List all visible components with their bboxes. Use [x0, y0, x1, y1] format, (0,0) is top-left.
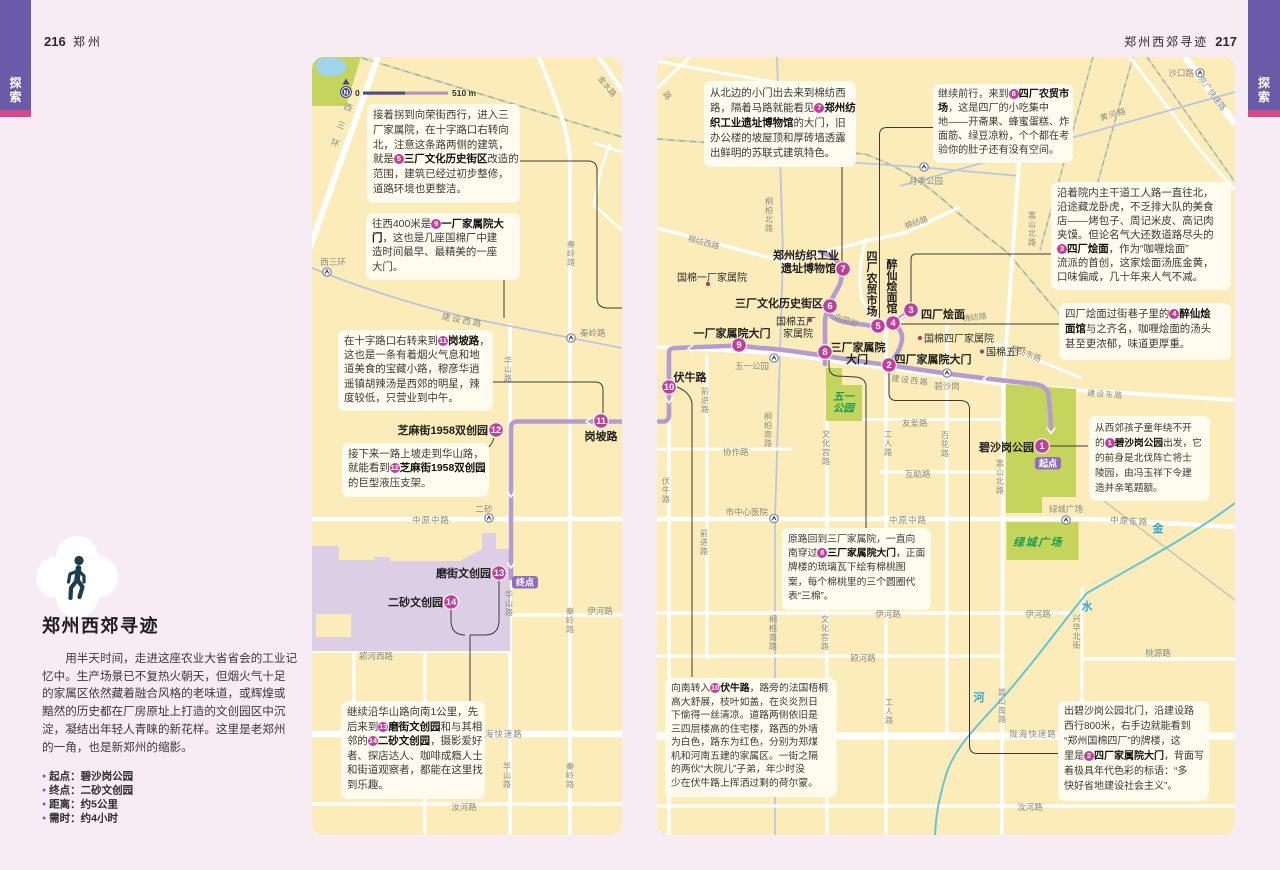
- svg-text:0: 0: [355, 88, 360, 98]
- svg-text:三厂文化历史街区: 三厂文化历史街区: [735, 296, 823, 310]
- svg-text:起点: 起点: [1038, 458, 1057, 469]
- svg-text:一厂家属院大门: 一厂家属院大门: [694, 326, 771, 340]
- svg-text:沙口路: 沙口路: [1168, 68, 1194, 78]
- svg-text:5: 5: [875, 321, 881, 332]
- svg-text:1: 1: [1039, 441, 1045, 452]
- svg-text:中原东路: 中原东路: [1110, 515, 1148, 527]
- svg-text:14: 14: [446, 597, 457, 608]
- svg-text:伊河路: 伊河路: [875, 609, 901, 619]
- svg-text:桐柏南路: 桐柏南路: [764, 411, 772, 448]
- svg-text:三厂家属院: 三厂家属院: [831, 340, 886, 354]
- svg-text:芝麻街1958双创园: 芝麻街1958双创园: [398, 423, 488, 437]
- svg-text:9: 9: [736, 340, 741, 351]
- svg-text:3: 3: [908, 305, 913, 316]
- svg-text:岗坡路: 岗坡路: [585, 429, 619, 443]
- svg-text:中原中路: 中原中路: [889, 515, 927, 525]
- svg-text:秦岭路: 秦岭路: [566, 606, 574, 634]
- svg-text:四厂烩面: 四厂烩面: [921, 307, 965, 321]
- svg-text:前进路: 前进路: [701, 386, 709, 414]
- svg-text:市中心医院: 市中心医院: [725, 507, 768, 517]
- svg-text:月季公园: 月季公园: [909, 176, 943, 186]
- svg-text:互助路: 互助路: [905, 469, 931, 479]
- svg-text:汝河路: 汝河路: [451, 802, 477, 812]
- svg-text:兴华北街: 兴华北街: [1073, 614, 1081, 650]
- svg-text:嵩山北路: 嵩山北路: [1028, 211, 1036, 247]
- svg-text:百花路: 百花路: [941, 431, 949, 458]
- svg-text:国棉四厂家属院: 国棉四厂家属院: [924, 332, 994, 345]
- svg-text:西三环: 西三环: [320, 257, 346, 267]
- svg-text:五一公园: 五一公园: [833, 391, 856, 415]
- svg-text:12: 12: [491, 425, 502, 436]
- svg-text:桃源路: 桃源路: [1145, 648, 1171, 658]
- svg-text:河: 河: [974, 690, 985, 704]
- svg-text:陇海快速路: 陇海快速路: [1009, 729, 1057, 739]
- svg-text:家属院: 家属院: [783, 327, 813, 340]
- svg-text:水: 水: [1082, 599, 1094, 613]
- svg-text:碧沙岗公园: 碧沙岗公园: [978, 440, 1034, 454]
- svg-text:国棉五厂: 国棉五厂: [776, 315, 816, 328]
- svg-text:8: 8: [822, 347, 827, 358]
- svg-text:工人路: 工人路: [885, 698, 893, 725]
- svg-text:前进路: 前进路: [700, 528, 708, 556]
- svg-text:颍河路: 颍河路: [850, 653, 876, 663]
- svg-text:醉仙烩面馆: 醉仙烩面馆: [887, 257, 898, 315]
- svg-text:13: 13: [494, 568, 505, 579]
- svg-text:秦岭路: 秦岭路: [567, 239, 575, 267]
- svg-text:遗址博物馆: 遗址博物馆: [780, 261, 836, 275]
- svg-text:秦岭路: 秦岭路: [580, 328, 606, 338]
- svg-text:二砂: 二砂: [475, 504, 493, 514]
- svg-text:文化宫路: 文化宫路: [822, 429, 830, 466]
- svg-text:绿城广场: 绿城广场: [1013, 536, 1063, 549]
- svg-text:终点: 终点: [515, 577, 534, 588]
- svg-text:N: N: [344, 90, 349, 97]
- svg-text:秦岭路: 秦岭路: [566, 761, 574, 789]
- svg-text:桐柏南路: 桐柏南路: [769, 614, 777, 651]
- svg-text:协作路: 协作路: [723, 447, 749, 457]
- svg-text:国棉五厂: 国棉五厂: [986, 346, 1026, 359]
- svg-text:工人路: 工人路: [884, 430, 892, 457]
- svg-text:伏牛路: 伏牛路: [674, 370, 708, 384]
- svg-text:华山路: 华山路: [503, 761, 511, 789]
- svg-text:华山路: 华山路: [505, 589, 513, 617]
- svg-text:4: 4: [890, 318, 896, 329]
- svg-text:文化宫路: 文化宫路: [821, 614, 829, 651]
- svg-text:郑州纺织工业: 郑州纺织工业: [773, 248, 839, 262]
- svg-text:桐柏北路: 桐柏北路: [765, 196, 773, 233]
- svg-text:6: 6: [827, 301, 832, 312]
- svg-text:2: 2: [886, 360, 891, 371]
- svg-text:伊河路: 伊河路: [1025, 609, 1051, 619]
- svg-text:颍河西路: 颍河西路: [359, 651, 394, 661]
- svg-text:二砂文创园: 二砂文创园: [388, 595, 443, 609]
- svg-text:金: 金: [1152, 521, 1165, 535]
- svg-text:汝河路: 汝河路: [1017, 802, 1043, 812]
- svg-text:伊河路: 伊河路: [587, 606, 613, 616]
- svg-text:绿城广场: 绿城广场: [1049, 504, 1083, 514]
- svg-text:华山路: 华山路: [504, 355, 512, 383]
- svg-text:五一公园: 五一公园: [735, 361, 769, 371]
- svg-text:11: 11: [596, 416, 607, 427]
- svg-text:四厂农贸市场: 四厂农贸市场: [866, 250, 878, 318]
- svg-text:伏牛路: 伏牛路: [662, 476, 670, 504]
- svg-text:国棉一厂家属院: 国棉一厂家属院: [677, 271, 747, 284]
- svg-text:10: 10: [664, 382, 675, 393]
- svg-text:四厂家属院大门: 四厂家属院大门: [895, 352, 972, 366]
- svg-text:碧沙岗: 碧沙岗: [934, 381, 960, 391]
- svg-text:嵩山南路: 嵩山南路: [998, 688, 1006, 724]
- svg-text:中原中路: 中原中路: [412, 515, 450, 525]
- svg-text:磨街文创园: 磨街文创园: [435, 566, 491, 580]
- svg-text:嵩山北路: 嵩山北路: [996, 459, 1004, 495]
- svg-text:7: 7: [840, 264, 845, 275]
- svg-text:510 m: 510 m: [452, 88, 477, 98]
- svg-text:友爱路: 友爱路: [902, 418, 928, 428]
- svg-text:大门: 大门: [846, 352, 868, 366]
